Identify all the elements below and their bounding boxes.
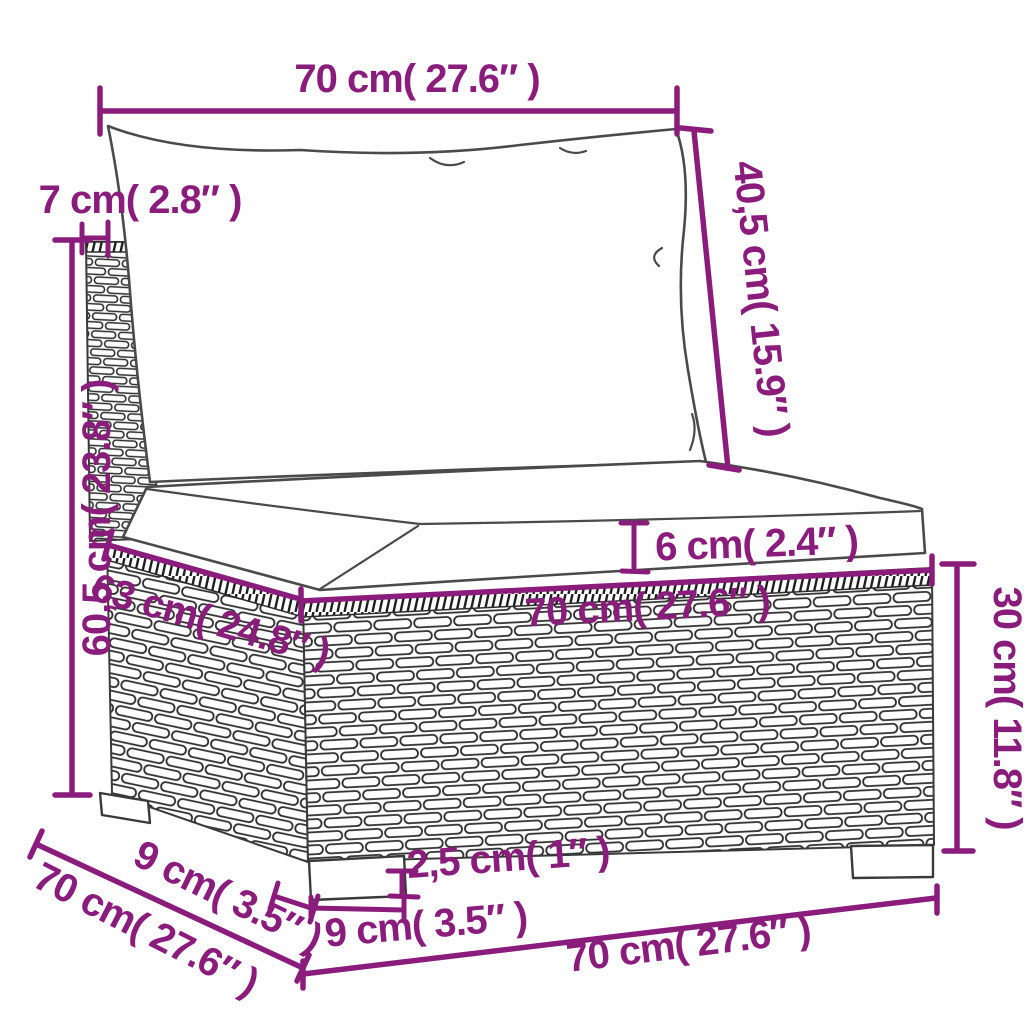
foot-front-left bbox=[309, 856, 406, 900]
dimension-base-height-line bbox=[942, 564, 974, 851]
dimension-back-cushion-height-label: 40,5 cm( 15.9″ ) bbox=[725, 159, 798, 439]
dimension-base-height: 30 cm( 11.8″ ) bbox=[942, 564, 1024, 851]
sofa-dimension-drawing: 70 cm( 27.6″ ) 40,5 cm( 15.9″ ) 7 cm( 2.… bbox=[0, 0, 1024, 1024]
dimension-seat-cushion-thickness: 6 cm( 2.4″ ) bbox=[621, 518, 859, 572]
dimension-top-width: 70 cm( 27.6″ ) bbox=[100, 57, 677, 134]
dimension-foot-width-label: 9 cm( 3.5″ ) bbox=[323, 894, 529, 956]
dimension-back-cushion-height: 40,5 cm( 15.9″ ) bbox=[681, 128, 797, 470]
dimension-seat-cushion-thickness-label: 6 cm( 2.4″ ) bbox=[654, 518, 858, 569]
dimension-diagram: 70 cm( 27.6″ ) 40,5 cm( 15.9″ ) 7 cm( 2.… bbox=[0, 0, 1024, 1024]
dimension-foot-width: 9 cm( 3.5″ ) bbox=[311, 894, 529, 956]
sofa-artwork bbox=[86, 126, 934, 900]
dimension-base-width-label: 70 cm( 27.6″ ) bbox=[564, 907, 813, 981]
dimension-base-height-label: 30 cm( 11.8″ ) bbox=[985, 586, 1024, 829]
dimension-back-panel-thickness-label: 7 cm( 2.8″ ) bbox=[39, 178, 242, 222]
foot-front-right bbox=[851, 845, 933, 878]
dimension-top-width-label: 70 cm( 27.6″ ) bbox=[294, 57, 539, 101]
